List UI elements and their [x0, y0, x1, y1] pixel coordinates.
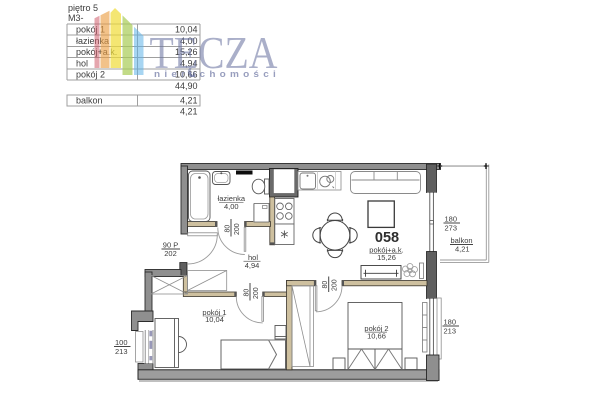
svg-text:4,00: 4,00	[224, 202, 239, 211]
svg-text:058: 058	[375, 230, 399, 246]
svg-text:M3-: M3-	[68, 13, 84, 23]
svg-text:180: 180	[445, 215, 458, 224]
svg-text:200: 200	[253, 287, 260, 299]
svg-text:80: 80	[243, 289, 250, 297]
svg-text:180: 180	[444, 318, 457, 327]
svg-text:10,04: 10,04	[205, 315, 224, 324]
svg-text:4,21: 4,21	[180, 95, 198, 105]
svg-text:80: 80	[322, 281, 329, 289]
svg-text:10,66: 10,66	[367, 331, 386, 340]
svg-text:4,21: 4,21	[455, 245, 470, 254]
svg-text:4,21: 4,21	[180, 106, 198, 116]
svg-text:213: 213	[444, 327, 457, 336]
svg-text:piętro 5: piętro 5	[68, 3, 98, 13]
svg-text:202: 202	[164, 249, 177, 258]
svg-text:4,94: 4,94	[245, 261, 260, 270]
svg-text:pokój 2: pokój 2	[76, 70, 105, 80]
svg-text:213: 213	[115, 347, 128, 356]
svg-text:balkon: balkon	[76, 95, 103, 105]
svg-text:273: 273	[445, 224, 458, 233]
svg-text:80: 80	[224, 225, 231, 233]
svg-text:200: 200	[332, 279, 339, 291]
svg-text:hol: hol	[76, 58, 88, 68]
svg-text:100: 100	[115, 338, 128, 347]
svg-text:15,26: 15,26	[377, 253, 396, 262]
svg-text:nieruchomości: nieruchomości	[154, 69, 280, 80]
svg-text:44,90: 44,90	[175, 81, 198, 91]
svg-text:200: 200	[234, 223, 241, 235]
